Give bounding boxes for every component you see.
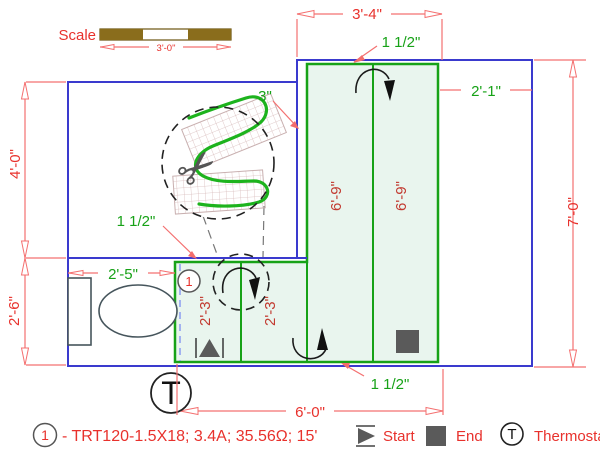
- dim-arrow: [101, 45, 114, 50]
- legend-end-icon: [426, 426, 446, 446]
- dim-right-total: 7'-0": [534, 60, 586, 367]
- legend-thermostat-label: Thermostat: [534, 428, 600, 445]
- dim-arrow: [570, 60, 577, 77]
- dim-arrow: [22, 348, 29, 365]
- dim-arrow: [69, 271, 83, 276]
- dim-left-lower-text: 2'-6": [6, 296, 23, 326]
- detail-leader: [263, 206, 264, 257]
- legend-thermostat-icon: T: [501, 423, 523, 445]
- dim-arrow: [425, 11, 442, 18]
- dim-arrow: [297, 11, 314, 18]
- detail-leader: [203, 216, 218, 257]
- dim-right-room-text: 2'-1": [471, 83, 501, 100]
- legend-start-icon: [356, 426, 375, 446]
- dim-gap-left: 1 1/2": [117, 213, 197, 259]
- toilet-tank: [68, 278, 91, 345]
- circuit-bubble: 1: [178, 270, 200, 292]
- floor-plan-drawing: ✂ Scale 3'-0" 3'-4" 1 1/2" 3": [0, 0, 600, 450]
- scale-bar-segment: [100, 29, 143, 40]
- thermostat-letter: T: [161, 375, 181, 411]
- mat-col-label: 6'-9": [328, 181, 345, 211]
- dim-arrow: [160, 271, 174, 276]
- legend-end-label: End: [456, 428, 483, 445]
- dim-right-total-text: 7'-0": [565, 197, 582, 227]
- cut-detail-bubble: ✂: [162, 94, 286, 257]
- legend-thermostat-letter: T: [507, 426, 516, 443]
- legend-circuit-spec: - TRT120-1.5X18; 3.4A; 35.56Ω; 15': [62, 428, 317, 445]
- scale-value: 3'-0": [157, 43, 176, 54]
- dim-arrow: [22, 258, 29, 275]
- plan-canvas: ✂ Scale 3'-0" 3'-4" 1 1/2" 3": [0, 0, 600, 450]
- toilet-fixture: [68, 278, 177, 345]
- toilet-bowl: [99, 285, 177, 337]
- scale-bar-segment: [188, 29, 231, 40]
- end-marker-icon: [396, 330, 419, 353]
- mat-col-label: 2'-3": [197, 296, 214, 326]
- dim-arrow: [22, 82, 29, 99]
- legend-circuit-number: 1: [41, 427, 49, 443]
- circuit-number: 1: [185, 274, 192, 289]
- legend-start-label: Start: [383, 428, 416, 445]
- scale-bar: Scale 3'-0": [58, 27, 231, 54]
- dim-top-width-text: 3'-4": [352, 6, 382, 23]
- dim-left-upper-text: 4'-0": [7, 149, 24, 179]
- dim-gap-bottom-text: 1 1/2": [371, 376, 410, 393]
- dim-gap-bottom: 1 1/2": [341, 363, 409, 393]
- dim-right-room: 2'-1": [440, 82, 532, 100]
- dim-gap-top-text: 1 1/2": [382, 34, 421, 51]
- scale-label: Scale: [58, 27, 96, 44]
- mat-col-label: 6'-9": [393, 181, 410, 211]
- legend: 1 - TRT120-1.5X18; 3.4A; 35.56Ω; 15' Sta…: [34, 423, 600, 447]
- thermostat-symbol: T: [151, 373, 191, 413]
- dim-arrow: [217, 45, 230, 50]
- dim-arrow: [426, 408, 443, 415]
- dim-bottom-total-text: 6'-0": [295, 404, 325, 421]
- dim-gap-top: 1 1/2": [353, 34, 420, 63]
- dim-gap-left-text: 1 1/2": [117, 213, 156, 230]
- dim-arrow: [22, 241, 29, 258]
- dim-gap-side-text: 3": [258, 88, 272, 105]
- dim-arrow: [570, 350, 577, 367]
- mat-col-label: 2'-3": [262, 296, 279, 326]
- dim-toilet-room-text: 2'-5": [108, 266, 138, 283]
- dim-left: 4'-0" 2'-6": [6, 82, 66, 365]
